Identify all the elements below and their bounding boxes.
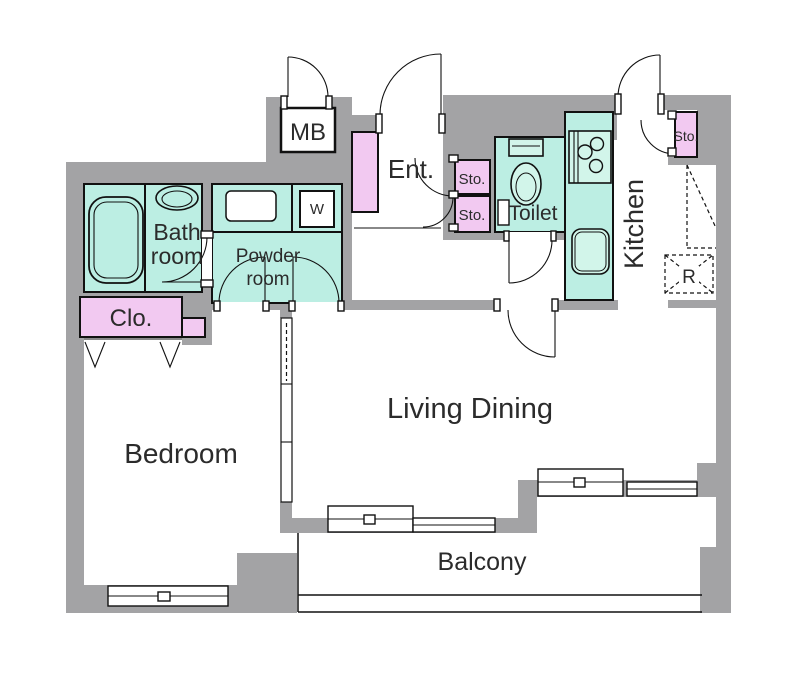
window-latch bbox=[574, 478, 585, 487]
mb-door-arc bbox=[288, 57, 328, 97]
toilet-tank bbox=[509, 139, 543, 156]
shoe-cabinet bbox=[352, 132, 378, 212]
jamb bbox=[551, 231, 556, 241]
window-latch bbox=[158, 592, 170, 601]
closet-hanger-icon bbox=[160, 342, 180, 367]
label-entrance: Ent. bbox=[388, 154, 434, 184]
wall-segment bbox=[697, 110, 717, 165]
powder-door-opening-right bbox=[293, 302, 340, 310]
jamb bbox=[326, 96, 332, 109]
powder-sink bbox=[226, 191, 276, 221]
jamb bbox=[504, 231, 509, 241]
burner-icon bbox=[590, 160, 603, 173]
closet-hanger-icon bbox=[85, 342, 105, 367]
jamb bbox=[449, 224, 458, 231]
wall-segment bbox=[66, 162, 266, 184]
wall-segment bbox=[668, 157, 717, 165]
jamb bbox=[552, 299, 558, 311]
jamb bbox=[376, 114, 382, 133]
jamb bbox=[615, 94, 621, 114]
wall-segment bbox=[668, 300, 717, 308]
label-powder-line1: Powder bbox=[236, 246, 301, 267]
wall-segment bbox=[716, 95, 731, 550]
label-refrigerator: R bbox=[682, 267, 696, 288]
label-kitchen-storage: Sto. bbox=[674, 128, 699, 144]
label-toilet: Toilet bbox=[508, 202, 557, 225]
wall-segment bbox=[280, 502, 292, 533]
jamb bbox=[263, 301, 269, 311]
label-balcony: Balcony bbox=[438, 548, 527, 576]
jamb bbox=[201, 280, 213, 287]
floor-plan-svg: MB Ent. Sto. Sto. Toilet Kitchen Sto. R … bbox=[0, 0, 800, 688]
label-kitchen: Kitchen bbox=[619, 179, 649, 269]
jamb bbox=[668, 111, 676, 119]
toilet-bowl bbox=[511, 163, 541, 205]
wall-segment bbox=[342, 184, 352, 310]
jamb bbox=[439, 114, 445, 133]
sliding-partition bbox=[281, 318, 292, 502]
living-door-arc bbox=[508, 310, 555, 357]
label-washer: W bbox=[310, 201, 325, 218]
wall-segment bbox=[66, 162, 84, 613]
jamb bbox=[214, 301, 220, 311]
label-living-dining: Living Dining bbox=[387, 393, 553, 425]
wall-segment bbox=[343, 300, 618, 310]
label-closet: Clo. bbox=[110, 305, 153, 332]
floor-plan-page: MB Ent. Sto. Sto. Toilet Kitchen Sto. R … bbox=[0, 0, 800, 688]
jamb bbox=[494, 299, 500, 311]
label-bathroom-line2: room bbox=[151, 243, 203, 269]
label-meter-box: MB bbox=[290, 119, 326, 146]
windows bbox=[108, 469, 697, 606]
jamb bbox=[338, 301, 344, 311]
kitchen-top-door-arc bbox=[618, 55, 660, 97]
mb-door-opening bbox=[285, 97, 327, 108]
burner-icon bbox=[578, 145, 592, 159]
jamb bbox=[289, 301, 295, 311]
jamb bbox=[281, 96, 287, 109]
label-storage-upper: Sto. bbox=[459, 171, 486, 188]
toilet-paper-holder bbox=[498, 200, 509, 225]
window-latch bbox=[364, 515, 375, 524]
toilet-door-opening bbox=[507, 232, 553, 240]
jamb bbox=[668, 148, 676, 156]
toilet-door-arc bbox=[509, 240, 552, 283]
label-storage-lower: Sto. bbox=[459, 207, 486, 224]
closet-tab bbox=[182, 318, 205, 337]
jamb bbox=[658, 94, 664, 114]
burner-icon bbox=[591, 138, 604, 151]
label-bathroom-line1: Bath bbox=[153, 219, 200, 245]
label-powder-line2: room bbox=[246, 269, 289, 290]
jamb bbox=[449, 155, 458, 162]
living-door-opening bbox=[498, 300, 555, 310]
powder-door-opening-left bbox=[218, 302, 265, 310]
entrance-door-arc bbox=[380, 54, 441, 115]
label-bedroom: Bedroom bbox=[124, 438, 238, 469]
upper-cabinet-dash-diagonal bbox=[687, 165, 716, 228]
jamb bbox=[449, 191, 458, 198]
wall-segment bbox=[237, 553, 297, 588]
kitchen-sink bbox=[572, 229, 609, 274]
wall-segment bbox=[700, 547, 731, 613]
jamb bbox=[201, 231, 213, 238]
